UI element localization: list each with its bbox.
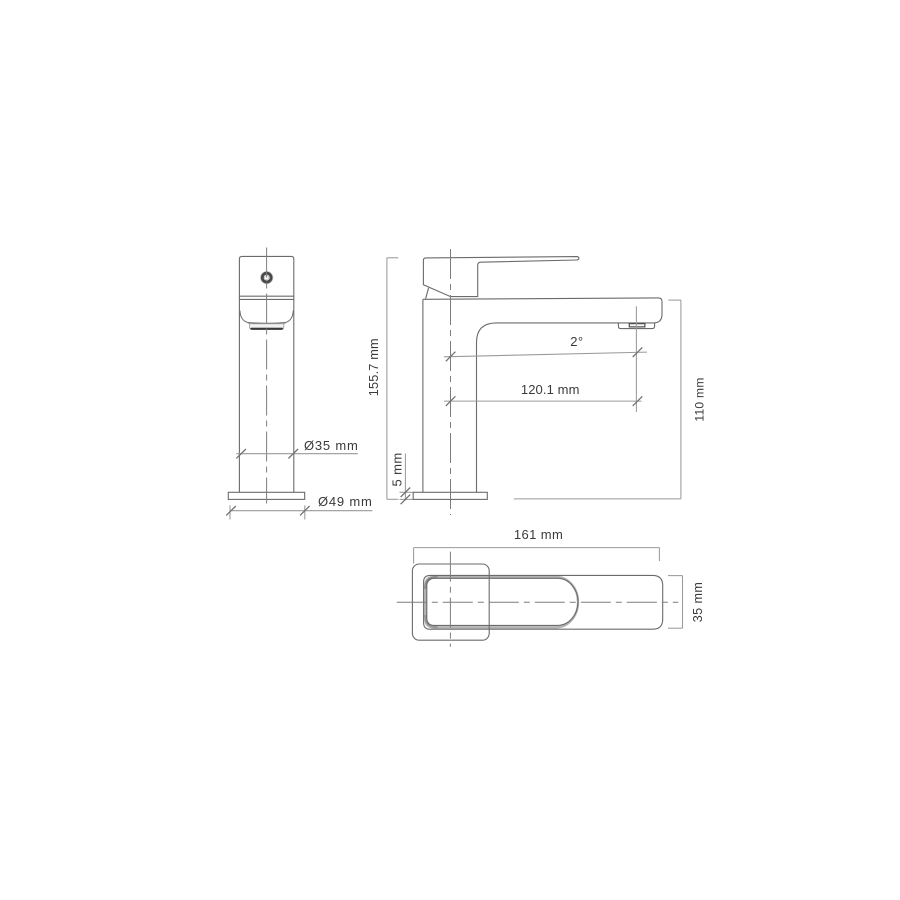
svg-text:161 mm: 161 mm (514, 527, 563, 542)
svg-text:120.1 mm: 120.1 mm (521, 382, 580, 397)
svg-text:35 mm: 35 mm (691, 582, 705, 623)
svg-text:5 mm: 5 mm (390, 452, 405, 486)
svg-text:Ø35 mm: Ø35 mm (304, 438, 359, 453)
svg-text:110 mm: 110 mm (692, 377, 706, 421)
svg-text:Ø49 mm: Ø49 mm (318, 494, 373, 509)
svg-text:155.7 mm: 155.7 mm (367, 338, 381, 396)
svg-text:2°: 2° (570, 334, 583, 349)
